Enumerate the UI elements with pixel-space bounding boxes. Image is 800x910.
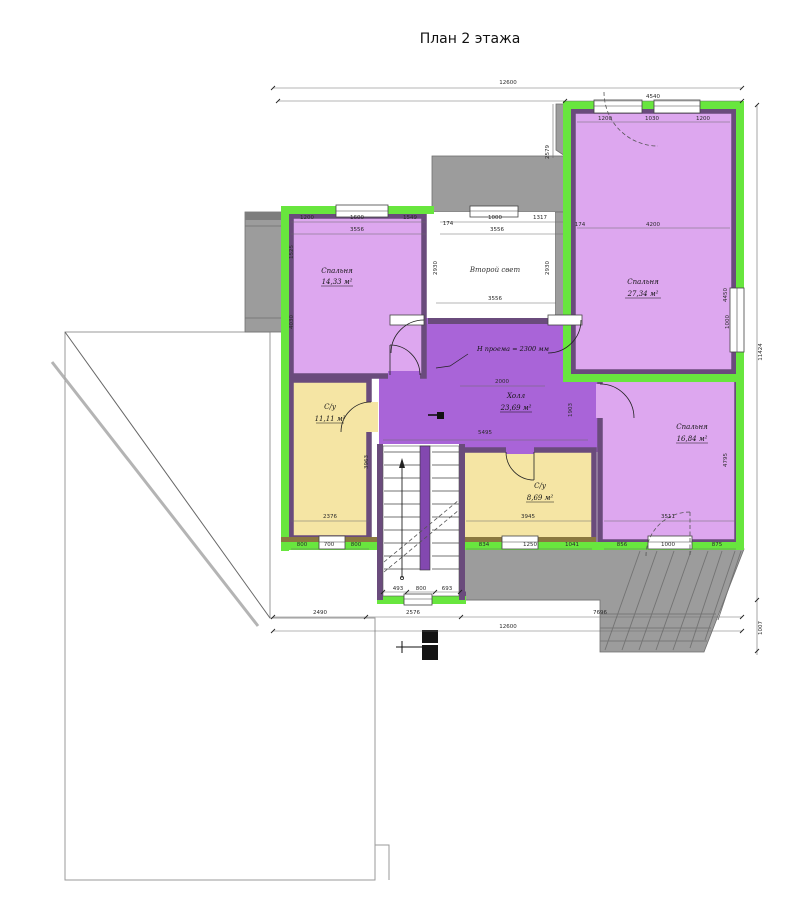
dimension-label: 1000 bbox=[661, 542, 675, 548]
dimension-label: 5495 bbox=[478, 430, 492, 436]
dimension-label: 1525 bbox=[289, 245, 295, 259]
dimension-label: 1000 bbox=[725, 315, 731, 329]
dimension-label: 3556 bbox=[350, 227, 364, 233]
window bbox=[654, 100, 700, 113]
dimension-label: 12600 bbox=[499, 80, 517, 86]
balcony-door-opening bbox=[548, 315, 582, 325]
dimension-label: 1549 bbox=[403, 215, 417, 221]
dimension-label: 174 bbox=[443, 221, 454, 227]
window bbox=[594, 100, 642, 113]
dimension-label: 2579 bbox=[545, 145, 551, 159]
dimension-label: 7696 bbox=[593, 610, 607, 616]
dimension-label: 800 bbox=[416, 586, 427, 592]
dimension-label: 2376 bbox=[323, 514, 337, 520]
room-area-bedroom-top-right: 27,34 м² bbox=[627, 290, 659, 298]
dimension-label: 4795 bbox=[723, 453, 729, 467]
opening-height-note: Н проема = 2300 мм bbox=[476, 345, 549, 353]
dimension-label: 3963 bbox=[364, 455, 370, 469]
dimension-label: 3556 bbox=[490, 227, 504, 233]
room-name-bathroom-right: С/у bbox=[534, 482, 547, 490]
dimension-label: 856 bbox=[617, 542, 628, 548]
dimension-label: 2930 bbox=[545, 261, 551, 275]
dimension-label: 12600 bbox=[499, 624, 517, 630]
chimney bbox=[396, 630, 438, 660]
dimension-label: 1030 bbox=[645, 116, 659, 122]
window bbox=[730, 288, 744, 352]
bedroom-top-right-floor bbox=[573, 111, 734, 372]
roof-left-strip bbox=[245, 212, 283, 332]
dimension-label: 1250 bbox=[523, 542, 537, 548]
room-name-bedroom-top-right: Спальня bbox=[627, 278, 659, 286]
room-area-bedroom-bottom-right: 16,84 м² bbox=[677, 435, 708, 443]
dimension-label: 1041 bbox=[565, 542, 579, 548]
dimension-label: 800 bbox=[297, 542, 308, 548]
dimension-label: 4200 bbox=[646, 222, 660, 228]
dimension-label: 4540 bbox=[646, 94, 660, 100]
dimension-label: 1317 bbox=[533, 215, 547, 221]
dimension-label: 1000 bbox=[488, 215, 502, 221]
roof-bottom-band bbox=[464, 549, 744, 652]
stairs bbox=[383, 446, 459, 596]
dimension-label: 1200 bbox=[598, 116, 612, 122]
dimension-label: 1600 bbox=[350, 215, 364, 221]
floor-plan-drawing: 1260045401142410072579249025767696126001… bbox=[0, 0, 800, 910]
dimension-label: 800 bbox=[351, 542, 362, 548]
dimension-label: 3556 bbox=[488, 296, 502, 302]
dimension-label: 1903 bbox=[568, 403, 574, 417]
dimension-label: 1200 bbox=[696, 116, 710, 122]
dimension-label: 4450 bbox=[723, 288, 729, 302]
second-light-label: Второй свет bbox=[469, 266, 521, 274]
dimension-label: 2000 bbox=[495, 379, 509, 385]
dimension-label: 700 bbox=[324, 542, 335, 548]
dimension-label: 834 bbox=[479, 542, 490, 548]
floor-plan-page: План 2 этажа bbox=[0, 0, 800, 910]
room-name-bedroom-bottom-right: Спальня bbox=[676, 423, 708, 431]
dimension-label: 493 bbox=[393, 586, 404, 592]
window bbox=[404, 594, 432, 605]
dimension-label: 2930 bbox=[433, 261, 439, 275]
dimension-label: 1200 bbox=[300, 215, 314, 221]
dimension-label: 2490 bbox=[313, 610, 327, 616]
bedroom-top-left-floor bbox=[291, 216, 424, 376]
dimension-label: 693 bbox=[442, 586, 453, 592]
dimension-label: 2576 bbox=[406, 610, 420, 616]
room-area-hall: 23,69 м² bbox=[500, 404, 532, 412]
dimension-label: 174 bbox=[575, 222, 586, 228]
dimension-label: 3945 bbox=[521, 514, 535, 520]
dimension-label: 3511 bbox=[661, 514, 675, 520]
room-name-hall: Холл bbox=[506, 392, 525, 400]
room-name-bathroom-left: С/у bbox=[324, 403, 337, 411]
dimension-label: 11424 bbox=[758, 343, 764, 361]
dimension-label: 1007 bbox=[758, 621, 764, 635]
room-area-bathroom-left: 11,11 м² bbox=[315, 415, 346, 423]
dimension-label: 4030 bbox=[289, 315, 295, 329]
room-area-bedroom-top-left: 14,33 м² bbox=[322, 278, 353, 286]
dimension-label: 875 bbox=[712, 542, 723, 548]
room-name-bedroom-top-left: Спальня bbox=[321, 267, 353, 275]
room-area-bathroom-right: 8,69 м² bbox=[527, 494, 554, 502]
